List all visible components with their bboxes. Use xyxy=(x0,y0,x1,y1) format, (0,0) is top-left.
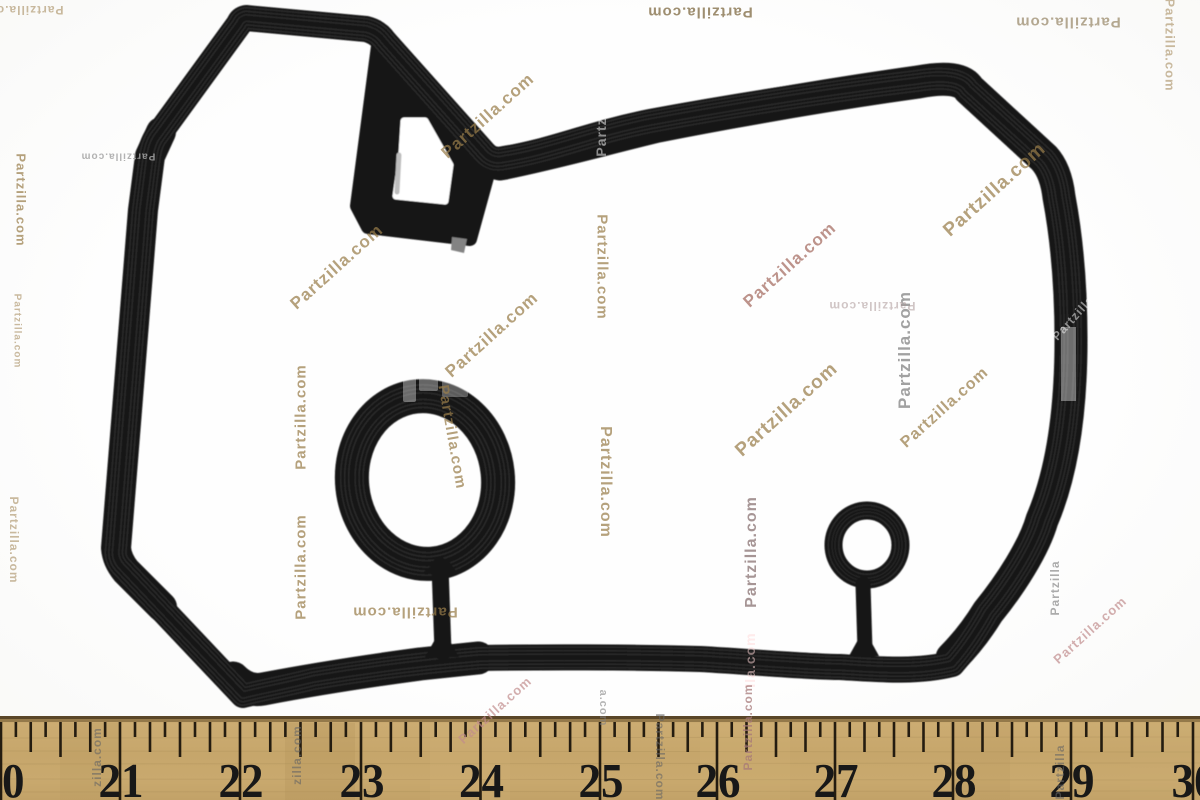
svg-text:26: 26 xyxy=(696,753,741,800)
svg-text:23: 23 xyxy=(340,753,385,800)
svg-text:25: 25 xyxy=(579,753,624,800)
svg-text:21: 21 xyxy=(99,753,144,800)
svg-text:20: 20 xyxy=(0,753,25,800)
svg-text:24: 24 xyxy=(459,753,504,800)
svg-text:27: 27 xyxy=(814,753,859,800)
svg-text:28: 28 xyxy=(932,753,977,800)
svg-text:30: 30 xyxy=(1172,753,1200,800)
svg-text:22: 22 xyxy=(219,753,264,800)
